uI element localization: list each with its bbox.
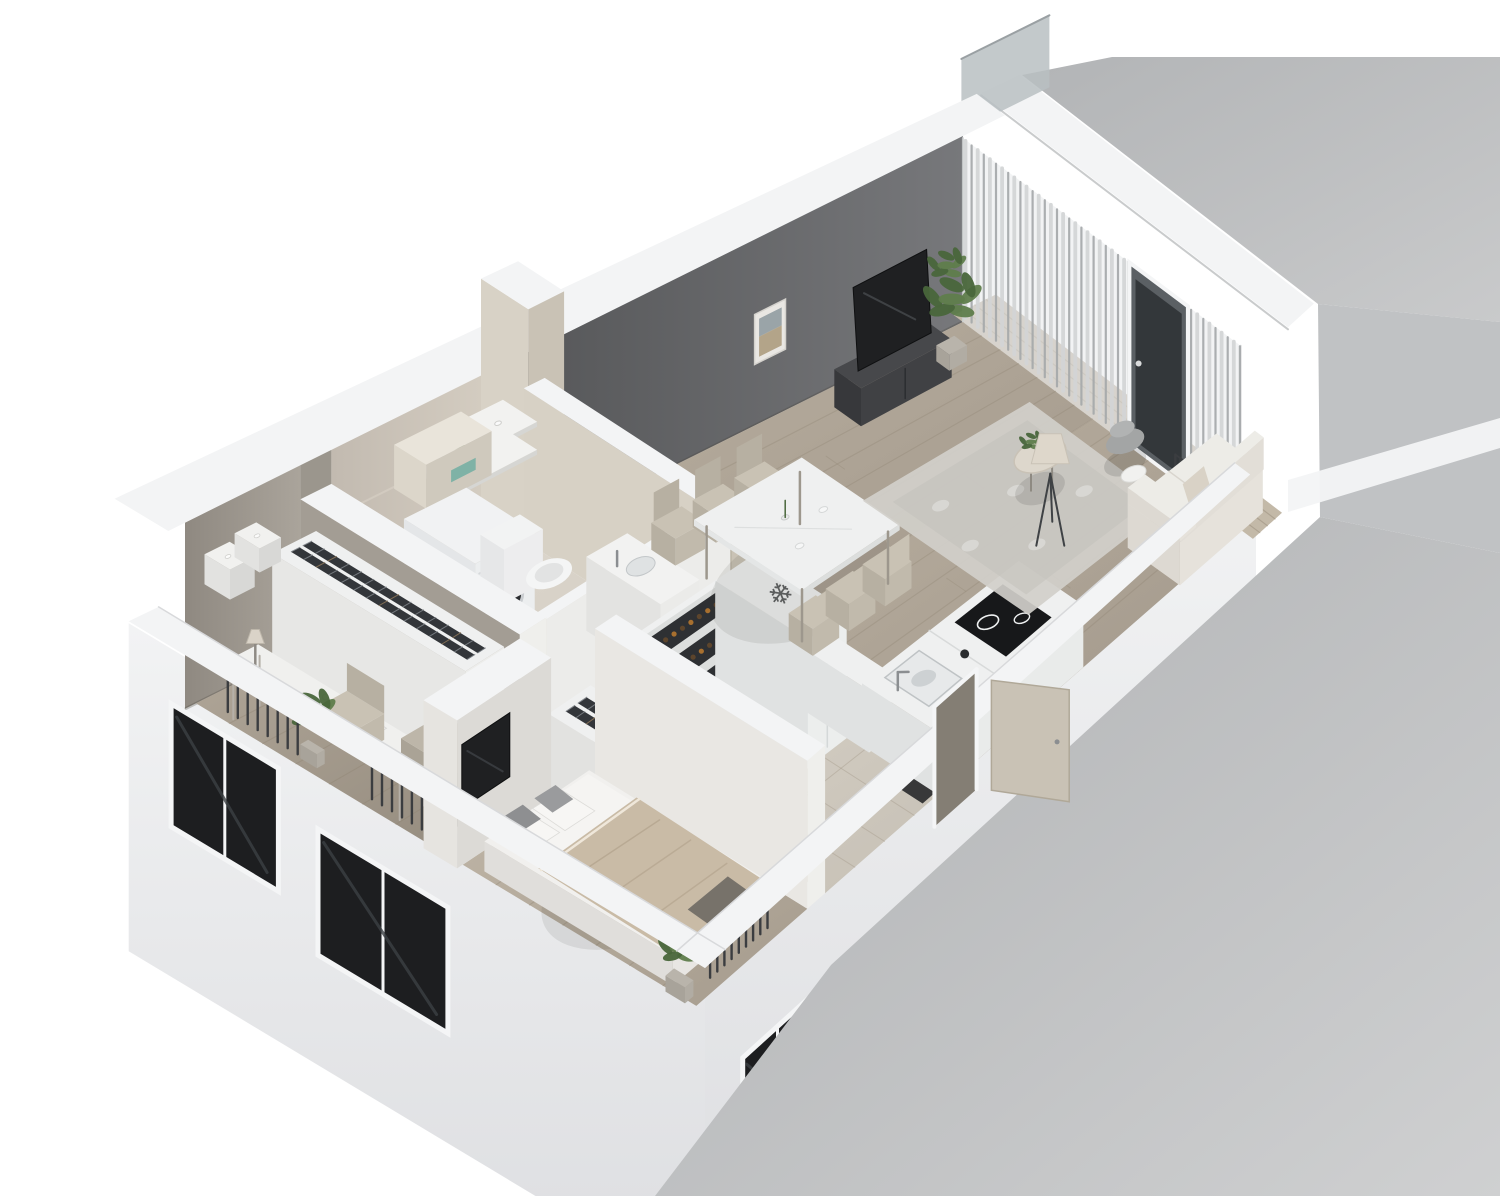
apartment-floor-plan-3d-render: ❄	[0, 0, 1500, 1196]
entrance-door-open-leaf	[991, 680, 1069, 802]
floor-plan-page: ❄	[0, 0, 1500, 1196]
